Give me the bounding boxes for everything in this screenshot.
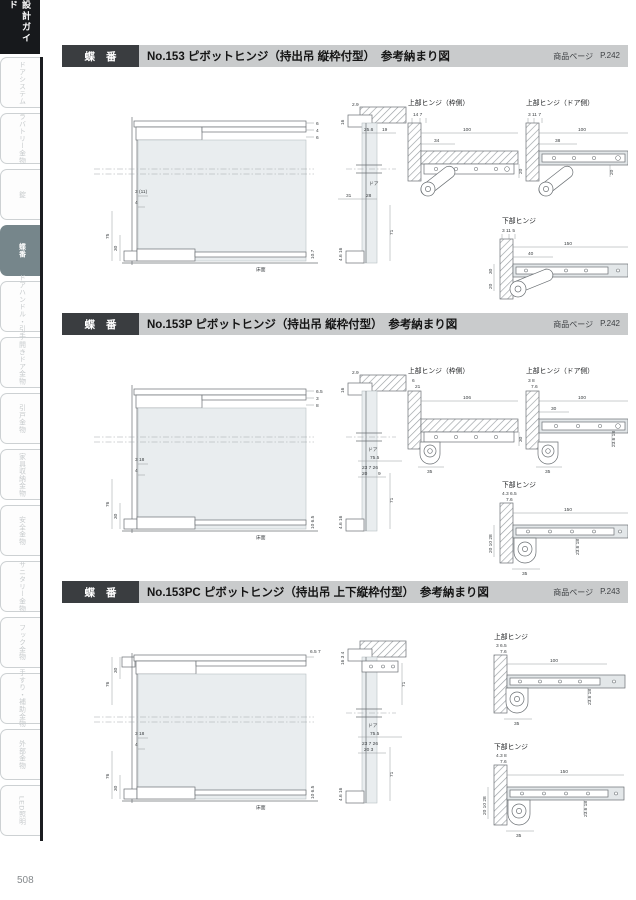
dim-label: 150 — [564, 241, 572, 247]
dim-label: 7.6 — [500, 649, 507, 655]
dim-label: 31 — [346, 193, 352, 199]
detail-label: 上部ヒンジ（枠側） — [408, 98, 469, 107]
dim-label: 20 10 28 — [488, 534, 494, 553]
pivot-pin — [539, 182, 553, 196]
pivot-pin — [510, 281, 526, 297]
dim-label: 3 11 7 — [528, 112, 541, 118]
product-page-link[interactable]: 商品ページ P.242 — [553, 319, 620, 330]
product-page-number: P.242 — [600, 51, 620, 62]
dim-label: 3 (11) — [135, 189, 148, 195]
dim-label: 75.5 — [370, 731, 380, 737]
sidebar-tab-label: 錠 — [16, 191, 26, 198]
sidebar-tab-13[interactable]: 外部金物 — [0, 729, 40, 780]
guide-tab-label: 設計ガイド — [7, 0, 33, 54]
dim-label: 25.6 — [364, 127, 374, 133]
dim-label: 4.6 16 — [338, 515, 344, 529]
dim-label: 19 — [382, 127, 388, 133]
dim-label: 8 — [316, 403, 319, 409]
pivot-pin — [542, 445, 554, 457]
wall-hatch — [494, 655, 507, 713]
detail-top-hinge-frame: 上部ヒンジ（枠側） 6 21 106 30 35 — [408, 366, 524, 475]
floor-label: 床面 — [256, 804, 266, 811]
wall-hatch — [408, 391, 421, 449]
dim-label: 4.6 16 — [338, 247, 344, 261]
dim-label: 20 10 28 — [482, 796, 488, 815]
dim-label: 4.3 8 — [496, 753, 507, 759]
floor-label: 床面 — [256, 534, 266, 541]
header-hatch — [421, 419, 518, 432]
product-page-link[interactable]: 商品ページ P.243 — [553, 587, 620, 598]
product-page-link[interactable]: 商品ページ P.242 — [553, 51, 620, 62]
dim-label: 23.6 18 — [575, 539, 581, 555]
detail-top-hinge-door: 上部ヒンジ（ドア側） 3 11 7 100 38 20 — [526, 98, 628, 198]
door-label: ドア — [368, 447, 378, 453]
door-label: ドア — [369, 181, 379, 187]
bottom-pivot-foot — [124, 789, 137, 799]
hinge-plate — [510, 678, 600, 685]
detail-label: 下部ヒンジ — [494, 742, 528, 751]
sidebar-tab-12[interactable]: 手すり・補助金物 — [0, 673, 40, 724]
dim-label: 100 — [578, 395, 586, 401]
dim-label: 35 — [427, 469, 433, 475]
diagram-svg-153: 3 (11) 4 75 30 床面 10.7 6 4 6 16 — [90, 89, 628, 313]
dim-label: 23.6 18 — [583, 801, 589, 817]
dim-label: 30 — [113, 513, 119, 519]
sidebar-tab-label: LED照明 — [16, 796, 26, 825]
page-number: 508 — [17, 875, 34, 886]
dim-label: 16 — [340, 119, 346, 125]
bottom-pivot-foot — [124, 251, 137, 261]
dim-label: 16 — [340, 387, 346, 393]
detail-label: 上部ヒンジ（枠側） — [408, 366, 469, 375]
sidebar-tab-11[interactable]: フック金物 — [0, 617, 40, 668]
product-page-label: 商品ページ — [553, 319, 593, 330]
hinge-category-tag: 蝶 番 — [62, 581, 139, 603]
hinge-plate — [510, 790, 608, 797]
sidebar-tab-stack: ドアシステムラバトリー金物錠蝶番ドアハンドル・引手開きドア金物引戸金物家具収納金… — [0, 57, 43, 841]
section-title: No.153P ピボットヒンジ（持出吊 縦枠付型） 参考納まり図 — [147, 316, 457, 332]
top-hinge-plate — [134, 389, 306, 395]
sidebar-tab-2[interactable]: ラバトリー金物 — [0, 113, 40, 164]
wall-hatch — [526, 123, 539, 181]
dim-label: 4.6 16 — [338, 787, 344, 801]
dim-label: 4.3 6.5 — [502, 491, 517, 497]
pivot-pin — [424, 445, 436, 457]
dim-label: 35 — [516, 833, 522, 839]
hinge-plate — [516, 528, 614, 535]
dim-label: 75.5 — [370, 455, 380, 461]
dim-label: 10.7 — [310, 249, 316, 259]
dim-label: 23.6 18 — [587, 689, 593, 705]
dim-label: 7.6 — [506, 497, 513, 503]
top-hinge-plate — [134, 655, 306, 661]
sidebar-tab-3[interactable]: 錠 — [0, 169, 40, 220]
detail-label: 上部ヒンジ（ドア側） — [526, 366, 594, 375]
detail-top-hinge: 上部ヒンジ 3 6.5 7.6 100 23.6 18 35 — [494, 632, 625, 727]
header-hatch — [421, 151, 518, 164]
dim-label: 71 — [389, 771, 395, 777]
dim-label: 28 — [366, 193, 372, 199]
sidebar-tab-label: 外部金物 — [16, 740, 26, 769]
section-no153pc: 蝶 番 No.153PC ピボットヒンジ（持出吊 上下縦枠付型） 参考納まり図 … — [62, 581, 628, 870]
dim-label: 21 — [415, 384, 421, 390]
sidebar-tab-4[interactable]: 蝶番 — [0, 225, 40, 276]
door-panel — [138, 140, 306, 261]
dim-label: 150 — [564, 507, 572, 513]
dim-label: 71 — [389, 497, 395, 503]
dim-label: 76 — [105, 501, 111, 507]
dim-label: 7.6 — [500, 759, 507, 765]
dim-label: 23.6 18 — [611, 431, 617, 447]
section-title: No.153PC ピボットヒンジ（持出吊 上下縦枠付型） 参考納まり図 — [147, 584, 489, 600]
dim-label: 30 — [113, 785, 119, 791]
dim-label: 6.5 7 — [310, 649, 321, 655]
sidebar-tab-label: ラバトリー金物 — [16, 113, 26, 164]
dim-label: 35 — [522, 571, 528, 577]
product-page-label: 商品ページ — [553, 587, 593, 598]
detail-label: 上部ヒンジ — [494, 632, 528, 641]
dim-label: 4 — [316, 128, 319, 134]
installation-diagram-153p: 3 18 4 76 30 床面 10 6.5 6.5 3 8 1 — [90, 357, 628, 586]
category-tab-rail: 設計ガイド ドアシステムラバトリー金物錠蝶番ドアハンドル・引手開きドア金物引戸金… — [0, 0, 43, 830]
door-section — [362, 123, 377, 263]
dim-label: 20 — [488, 283, 494, 289]
dim-label: 6 — [316, 135, 319, 141]
sidebar-tab-label: ドアシステム — [16, 61, 26, 105]
dim-label: 4 — [135, 742, 138, 748]
sidebar-tab-label: 家具収納金物 — [16, 453, 26, 497]
top-hinge-body — [136, 127, 202, 140]
dim-label: 150 — [560, 769, 568, 775]
front-elevation: 30 76 6.5 7 3 18 4 76 30 床面 10 6.5 — [94, 649, 321, 811]
side-section-view: 16 2.9 25.6 19 ドア 31 28 71 4.6 16 — [338, 102, 406, 263]
detail-bottom-hinge: 下部ヒンジ 3 11 5 150 40 30 20 — [488, 216, 628, 299]
section-title-bar: No.153 ピボットヒンジ（持出吊 縦枠付型） 参考納まり図 商品ページ P.… — [139, 45, 628, 67]
sidebar-guide-tab[interactable]: 設計ガイド — [0, 0, 40, 54]
dim-label: 23 7 26 — [362, 465, 378, 471]
top-hinge-plate — [134, 121, 306, 127]
dim-label: 40 — [528, 251, 534, 257]
dim-label: 30 — [113, 245, 119, 251]
dim-label: 4 — [135, 468, 138, 474]
dim-label: 14 7 — [413, 112, 423, 118]
product-page-label: 商品ページ — [553, 51, 593, 62]
section-header: 蝶 番 No.153 ピボットヒンジ（持出吊 縦枠付型） 参考納まり図 商品ペー… — [62, 45, 628, 67]
detail-label: 上部ヒンジ（ドア側） — [526, 98, 594, 107]
top-hinge-body — [136, 395, 202, 408]
sidebar-tab-8[interactable]: 家具収納金物 — [0, 449, 40, 500]
dim-label: 75 — [105, 233, 111, 239]
door-section — [362, 657, 377, 803]
bottom-hinge-body — [137, 787, 195, 799]
section-no153: 蝶 番 No.153 ピボットヒンジ（持出吊 縦枠付型） 参考納まり図 商品ペー… — [62, 45, 628, 318]
dim-label: 20 — [362, 471, 368, 477]
bottom-pivot-foot — [124, 519, 137, 529]
product-page-number: P.243 — [600, 587, 620, 598]
sidebar-tab-9[interactable]: 安全金物 — [0, 505, 40, 556]
side-section-view: 16 2.9 ドア 75.5 23 7 26 20 9 71 4.6 16 — [338, 370, 406, 531]
sidebar-tab-label: 手すり・補助金物 — [16, 669, 26, 727]
wall-hatch — [408, 123, 421, 181]
dim-label: 34 — [434, 138, 440, 144]
dim-label: 20 — [518, 168, 524, 174]
sidebar-tab-label: 安全金物 — [16, 516, 26, 545]
dim-label: 23 7 26 — [362, 741, 378, 747]
sidebar-tab-label: サニタリー金物 — [16, 561, 26, 612]
floor-label: 床面 — [256, 266, 266, 273]
dim-label: 6.5 — [316, 389, 323, 395]
door-label: ドア — [368, 723, 378, 729]
hinge-category-tag: 蝶 番 — [62, 313, 139, 335]
dim-label: 3 6.5 — [496, 643, 507, 649]
wall-hatch — [494, 765, 507, 825]
side-section-view: 16 3 4 71 ドア 75.5 23 7 26 20 3 71 4.6 16 — [338, 641, 407, 803]
sidebar-tab-label: 引戸金物 — [16, 404, 26, 433]
detail-label: 下部ヒンジ — [502, 216, 536, 225]
dim-label: 38 — [555, 138, 561, 144]
dim-label: 7.6 — [531, 384, 538, 390]
dim-label: 30 — [551, 406, 557, 412]
top-hinge-body — [136, 661, 196, 674]
dim-label: 6 — [316, 121, 319, 127]
detail-bottom-hinge: 下部ヒンジ 4.3 8 7.6 150 20 10 28 23.6 18 35 — [482, 742, 624, 839]
detail-label: 下部ヒンジ — [502, 480, 536, 489]
dim-label: 100 — [578, 127, 586, 133]
dim-label: 100 — [550, 658, 558, 664]
hinge-category-tag: 蝶 番 — [62, 45, 139, 67]
door-panel — [138, 408, 306, 529]
section-header: 蝶 番 No.153P ピボットヒンジ（持出吊 縦枠付型） 参考納まり図 商品ペ… — [62, 313, 628, 335]
detail-top-hinge-door: 上部ヒンジ（ドア側） 3 8 7.6 100 30 23.6 18 35 — [526, 366, 628, 475]
dim-label: 4 — [135, 200, 138, 206]
dim-label: 71 — [401, 681, 407, 687]
sidebar-tab-1[interactable]: ドアシステム — [0, 57, 40, 108]
diagram-svg-153p: 3 18 4 76 30 床面 10 6.5 6.5 3 8 1 — [90, 357, 628, 581]
dim-label: 35 — [545, 469, 551, 475]
wall-hatch — [500, 503, 513, 563]
bottom-pivot-bracket — [346, 791, 364, 803]
detail-top-hinge-frame: 上部ヒンジ（枠側） 14 7 100 34 20 — [408, 98, 524, 198]
sidebar-tab-10[interactable]: サニタリー金物 — [0, 561, 40, 612]
top-pivot-foot — [122, 657, 135, 667]
section-title-bar: No.153P ピボットヒンジ（持出吊 縦枠付型） 参考納まり図 商品ページ P… — [139, 313, 628, 335]
dim-label: 20 3 — [364, 747, 374, 753]
bottom-hinge-body — [137, 517, 195, 529]
dim-label: 3 — [316, 396, 319, 402]
front-elevation: 3 (11) 4 75 30 床面 10.7 6 4 6 — [94, 117, 319, 273]
front-elevation: 3 18 4 76 30 床面 10 6.5 6.5 3 8 — [94, 385, 323, 541]
dim-label: 10 6.5 — [310, 785, 316, 799]
pivot-pin — [421, 182, 435, 196]
pivot-pin — [518, 542, 532, 556]
sidebar-tab-6[interactable]: 開きドア金物 — [0, 337, 40, 388]
dim-label: 106 — [463, 395, 471, 401]
dim-label: 6 — [412, 378, 415, 384]
dim-label: 76 — [105, 681, 111, 687]
sidebar-tab-label: フック金物 — [16, 624, 26, 661]
sidebar-tab-label: 蝶番 — [16, 243, 26, 258]
dim-label: 76 — [105, 773, 111, 779]
bottom-hinge-body — [137, 249, 195, 261]
installation-diagram-153pc: 30 76 6.5 7 3 18 4 76 30 床面 10 6.5 16 3 … — [90, 625, 628, 870]
pivot-pin — [510, 692, 524, 706]
dim-label: 9 — [378, 471, 381, 477]
section-header: 蝶 番 No.153PC ピボットヒンジ（持出吊 上下縦枠付型） 参考納まり図 … — [62, 581, 628, 603]
section-title: No.153 ピボットヒンジ（持出吊 縦枠付型） 参考納まり図 — [147, 48, 450, 64]
sidebar-tab-7[interactable]: 引戸金物 — [0, 393, 40, 444]
dim-label: 3 8 — [528, 378, 535, 384]
diagram-svg-153pc: 30 76 6.5 7 3 18 4 76 30 床面 10 6.5 16 3 … — [90, 625, 628, 865]
hinge-plate — [516, 267, 608, 274]
product-page-number: P.242 — [600, 319, 620, 330]
dim-label: 100 — [463, 127, 471, 133]
dim-label: 30 — [113, 667, 119, 673]
dim-label: 2.9 — [352, 102, 359, 108]
sidebar-tab-label: ドアハンドル・引手 — [16, 274, 26, 340]
dim-label: 2.9 — [352, 370, 359, 376]
bottom-pivot-bracket — [346, 519, 364, 531]
sidebar-tab-label: 開きドア金物 — [16, 341, 26, 385]
dim-label: 16 3 4 — [340, 651, 346, 665]
section-title-bar: No.153PC ピボットヒンジ（持出吊 上下縦枠付型） 参考納まり図 商品ペー… — [139, 581, 628, 603]
dim-label: 3 11 5 — [502, 228, 515, 234]
pivot-pin — [512, 804, 526, 818]
dim-label: 20 — [609, 169, 615, 175]
dim-label: 3 18 — [135, 457, 145, 463]
dim-label: 35 — [514, 721, 520, 727]
dim-label: 3 18 — [135, 731, 145, 737]
dim-label: 30 — [518, 436, 524, 442]
wall-hatch — [526, 391, 539, 449]
dim-label: 30 — [488, 268, 494, 274]
sidebar-tab-14[interactable]: LED照明 — [0, 785, 40, 836]
detail-bottom-hinge: 下部ヒンジ 4.3 6.5 7.6 150 20 10 28 23.6 18 3… — [488, 480, 628, 577]
section-no153p: 蝶 番 No.153P ピボットヒンジ（持出吊 縦枠付型） 参考納まり図 商品ペ… — [62, 313, 628, 586]
door-panel — [138, 674, 306, 799]
bottom-pivot-bracket — [346, 251, 364, 263]
dim-label: 71 — [389, 229, 395, 235]
sidebar-tab-5[interactable]: ドアハンドル・引手 — [0, 281, 40, 332]
dim-label: 10 6.5 — [310, 515, 316, 529]
installation-diagram-153: 3 (11) 4 75 30 床面 10.7 6 4 6 16 — [90, 89, 628, 318]
